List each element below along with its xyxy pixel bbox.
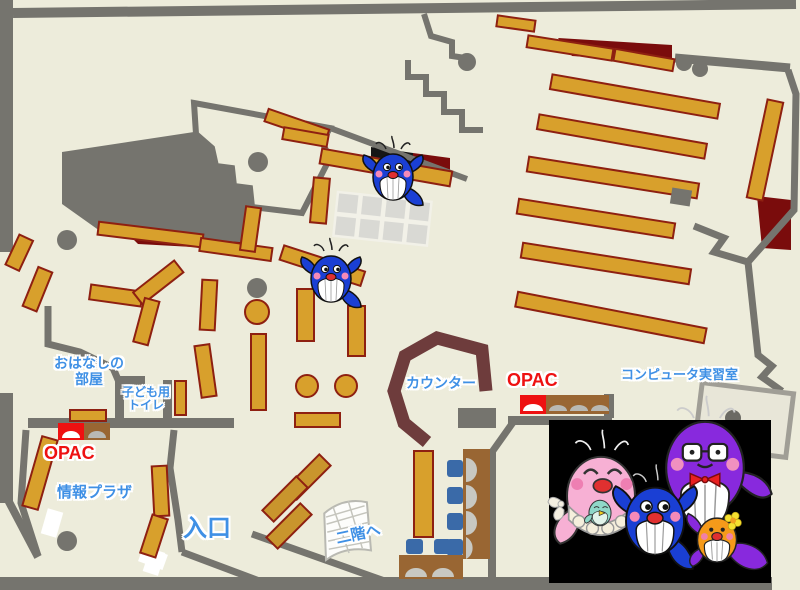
opac-terminal-right (520, 395, 609, 414)
label-info-plaza: 情報プラザ (57, 485, 132, 502)
label-opac-right: OPAC (507, 370, 558, 390)
label-opac-left: OPAC (44, 443, 95, 463)
diagonal-shelves (262, 454, 330, 548)
counter-desk (458, 408, 496, 428)
opac-terminal-left (58, 423, 110, 440)
shelf-end-cap (670, 188, 692, 207)
label-kids-toilet: 子ども用 トイレ (116, 386, 176, 413)
label-storytelling-room: おはなしの 部屋 (48, 356, 130, 387)
label-computer-room: コンピュータ実習室 (621, 368, 738, 383)
label-entrance: 入口 (183, 516, 231, 543)
library-floor-map: おはなしの 部屋 子ども用 トイレ OPAC 情報プラザ 入口 二階へ カウンタ… (0, 0, 800, 590)
whale-family-photo (548, 396, 772, 583)
study-carrels (399, 449, 490, 579)
label-counter: カウンター (406, 376, 476, 392)
